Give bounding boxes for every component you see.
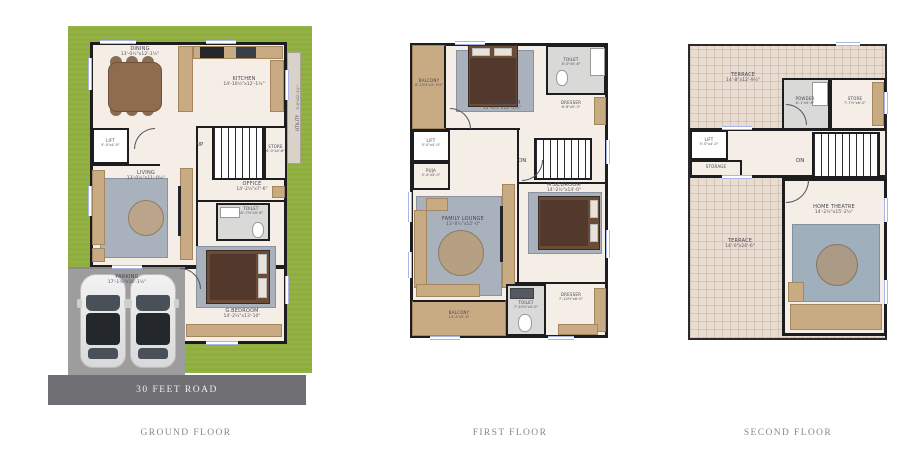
room-label-lift: LIFT 5'-0"x4'-0" (413, 138, 449, 147)
room-label-puja: PUJA 5'-4"x4'-0" (413, 168, 449, 177)
window (722, 126, 752, 130)
room-label-family-lounge: FAMILY LOUNGE 13'-0½"x12'-0" (426, 216, 500, 228)
room-label-dresser-top: DRESSER 6'-6"x5'-3" (548, 100, 594, 109)
window (836, 42, 860, 46)
caption-ground-floor: GROUND FLOOR (116, 428, 256, 438)
room-label-living: LIVING 13'-0½"x11'-0½" (115, 170, 177, 182)
armchair (426, 198, 448, 211)
road-label: 30 FEET ROAD (136, 385, 218, 395)
room-label-balcony-bottom: BALCONY 14'-4"x5'-0" (424, 310, 494, 319)
car-mirror (127, 299, 132, 308)
pillow (472, 48, 490, 56)
room-label-lift: LIFT 5'-0"x4'-0" (93, 138, 128, 147)
car (80, 274, 126, 368)
room-label-powder: POWDER 6'-1"x5'-6" (783, 96, 827, 105)
wall (90, 164, 160, 166)
room-label-lift: LIFT 5'-0"x4'-0" (691, 137, 727, 146)
room-label-office: OFFICE 14'-2½"x7'-6" (216, 181, 288, 193)
stairs-direction-label: DN (796, 158, 804, 164)
room-label-toilet: TOILET 10'-7½"x5'-6" (234, 206, 268, 215)
pillow (590, 200, 598, 218)
window (606, 230, 610, 258)
floor-plans-canvas: DINING 13'-0½"x12'-1½" KITCHEN 14'-10½"x… (0, 0, 900, 460)
dresser-wardrobe (558, 324, 598, 335)
tv-unit (502, 184, 515, 288)
car-mirror (77, 299, 82, 308)
room-label-dining: DINING 13'-0½"x12'-1½" (103, 46, 177, 58)
stairs-direction-label: DN (518, 158, 526, 164)
staircase (534, 138, 592, 180)
ottoman (128, 200, 164, 236)
room-label-parking: PARKING 17'-1½"x16'-1½" (92, 274, 162, 286)
car-rear-window (138, 348, 168, 359)
window (884, 92, 888, 114)
window (884, 280, 888, 304)
pillow (258, 278, 267, 298)
room-label-balcony-top: BALCONY 6'-10½"x2'-9½" (411, 78, 447, 87)
room-label-utility: UTILITY 3'-0"x12'-1½" (288, 60, 300, 156)
toilet-wc (518, 314, 532, 332)
window (100, 40, 136, 44)
caption-second-floor: SECOND FLOOR (718, 428, 858, 438)
wall (517, 128, 519, 290)
window (606, 140, 610, 164)
room-label-ch-bedroom: CH.BEDROOM 13'-0½"x12'-1½" (468, 100, 536, 112)
wardrobe (186, 324, 282, 337)
stove (200, 47, 224, 58)
window (408, 252, 412, 278)
pillow (494, 48, 512, 56)
wall (196, 200, 287, 202)
window (285, 276, 289, 304)
round-rug (438, 230, 484, 276)
car-windshield (86, 295, 120, 311)
tv-unit (180, 168, 193, 260)
sink (236, 47, 256, 58)
room-label-store: STORE 7'-7½"x6'-0" (830, 96, 880, 105)
window (430, 336, 460, 340)
sofa (790, 304, 882, 330)
car (130, 274, 176, 368)
tv (500, 206, 503, 262)
round-rug (816, 244, 858, 286)
room-label-gbedroom: G.BEDROOM 14'-2½"x13'-10" (204, 308, 280, 320)
room-label-toilet-bottom: TOILET 7'-10½"x5'-0" (507, 300, 545, 309)
car-windshield (136, 295, 170, 311)
staircase (212, 126, 264, 180)
blanket (210, 254, 256, 300)
sofa (416, 284, 480, 297)
tv (178, 186, 181, 236)
sofa (92, 170, 105, 245)
armchair (788, 282, 804, 302)
car-rear-window (88, 348, 118, 359)
window (548, 336, 574, 340)
room-label-home-theatre: HOME THEATRE 14'-2½"x15'-2½" (794, 204, 874, 216)
blanket (470, 58, 516, 104)
room-label-store: STORE 6'-0"x4'-6" (263, 144, 288, 153)
pillow (258, 254, 267, 274)
car-roof (86, 313, 120, 345)
window (112, 265, 142, 269)
window (88, 58, 92, 90)
stairs-direction-label: UP (196, 142, 203, 148)
road: 30 FEET ROAD (48, 375, 306, 405)
kitchen-counter (178, 46, 193, 112)
window (206, 40, 236, 44)
window (455, 41, 485, 45)
room-label-dresser-bottom: DRESSER 7'-10½"x6'-0" (546, 292, 596, 301)
window (722, 175, 752, 179)
window (88, 186, 92, 216)
car-roof (136, 313, 170, 345)
dresser-wardrobe (594, 97, 606, 125)
toilet-sink (510, 288, 534, 299)
window (884, 198, 888, 222)
pillow (590, 224, 598, 242)
toilet-wc (556, 70, 568, 86)
room-label-kitchen: KITCHEN 14'-10½"x12'-1½" (207, 76, 281, 88)
room-label-storage: STORAGE (691, 164, 741, 169)
side-table (92, 248, 105, 262)
staircase (812, 132, 880, 178)
caption-first-floor: FIRST FLOOR (440, 428, 580, 438)
window (408, 192, 412, 222)
room-label-terrace-top: TERRACE 14'-8"x12'-9½" (706, 72, 780, 84)
car-mirror (174, 299, 179, 308)
toilet-sink (590, 48, 605, 76)
window (206, 341, 238, 345)
room-label-toilet-top: TOILET 8'-0"x5'-6" (550, 57, 592, 66)
room-label-terrace-bottom: TERRACE 14'-0"x24'-6" (704, 238, 776, 250)
blanket (540, 200, 588, 246)
room-label-m-bedroom: M.BEDROOM 14'-2½"x14'-0" (526, 182, 602, 194)
dining-table (108, 62, 162, 112)
toilet-wc (252, 222, 264, 238)
